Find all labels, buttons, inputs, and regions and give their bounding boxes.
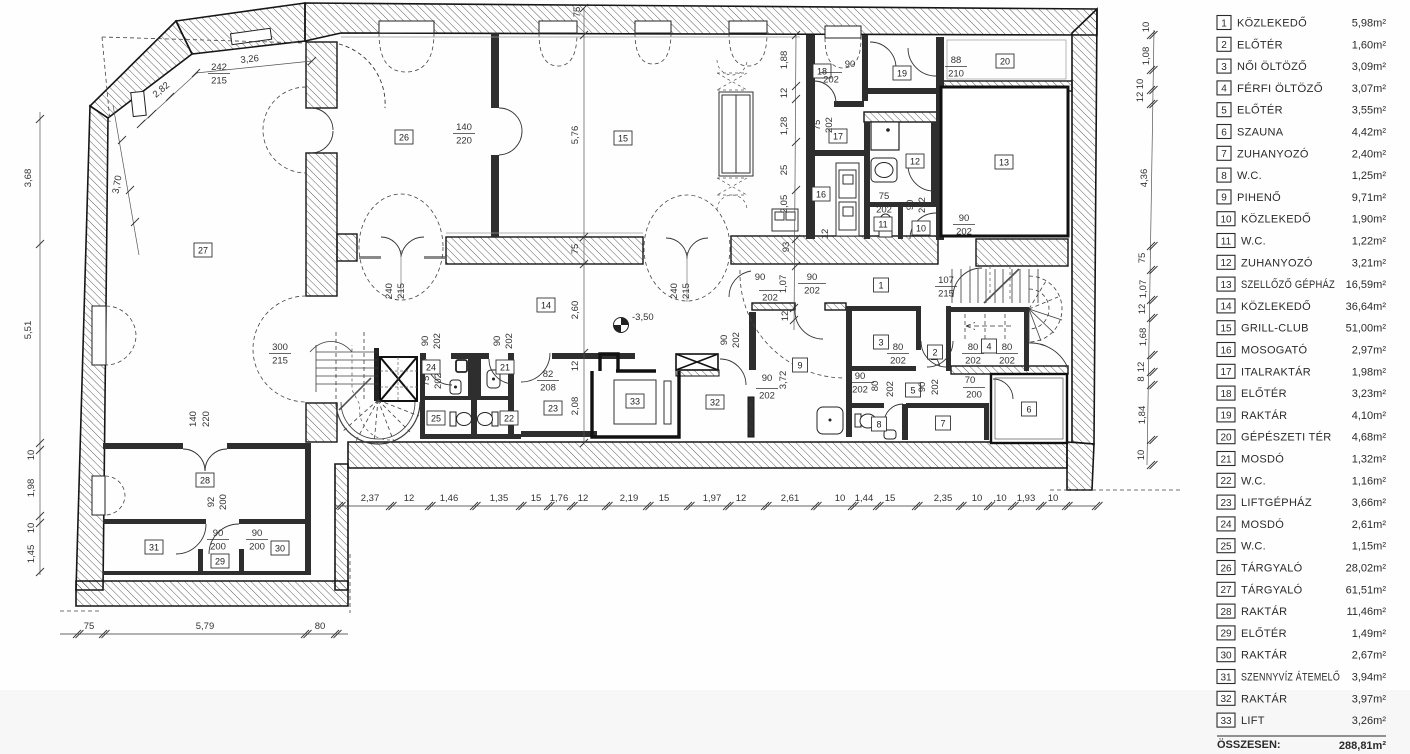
svg-text:33: 33 [1220, 716, 1232, 727]
svg-text:82: 82 [543, 369, 554, 380]
svg-text:18: 18 [1220, 389, 1232, 400]
svg-text:1,46: 1,46 [440, 493, 459, 504]
svg-text:90: 90 [959, 213, 970, 224]
svg-text:1,28: 1,28 [779, 117, 790, 136]
svg-text:1,98m²: 1,98m² [1352, 366, 1387, 378]
svg-text:RAKTÁR: RAKTÁR [1241, 649, 1287, 662]
svg-text:1,98: 1,98 [26, 479, 37, 498]
svg-text:19: 19 [897, 69, 907, 79]
svg-text:10: 10 [26, 450, 37, 461]
svg-text:90: 90 [807, 272, 818, 283]
svg-text:RAKTÁR: RAKTÁR [1241, 692, 1287, 705]
svg-text:7: 7 [1221, 149, 1227, 160]
svg-text:215: 215 [272, 356, 288, 367]
svg-text:13: 13 [1220, 280, 1232, 291]
svg-text:9: 9 [1221, 193, 1227, 204]
svg-text:3,07m²: 3,07m² [1352, 83, 1387, 95]
svg-text:15: 15 [1220, 324, 1232, 335]
svg-text:202: 202 [956, 227, 972, 238]
svg-text:90: 90 [762, 373, 773, 384]
svg-text:12: 12 [820, 229, 831, 240]
svg-text:,10: ,10 [993, 493, 1006, 504]
svg-text:ELŐTÉR: ELŐTÉR [1241, 626, 1287, 640]
svg-text:FÉRFI ÖLTÖZŐ: FÉRFI ÖLTÖZŐ [1237, 81, 1323, 95]
svg-text:SZELLŐZŐ GÉPHÁZ: SZELLŐZŐ GÉPHÁZ [1241, 277, 1335, 291]
svg-text:215: 215 [211, 76, 227, 87]
svg-text:3,21m²: 3,21m² [1352, 257, 1387, 269]
svg-text:29: 29 [215, 557, 225, 567]
svg-text:5: 5 [910, 386, 915, 396]
svg-text:28: 28 [1220, 607, 1232, 618]
svg-text:ZUHANYOZÓ: ZUHANYOZÓ [1237, 147, 1309, 160]
svg-text:240: 240 [669, 283, 680, 299]
svg-text:200: 200 [249, 542, 265, 553]
svg-text:1,16m²: 1,16m² [1352, 475, 1387, 487]
svg-text:3,26: 3,26 [240, 53, 260, 66]
svg-text:10: 10 [972, 493, 983, 504]
svg-text:2,61m²: 2,61m² [1352, 519, 1387, 531]
svg-text:10: 10 [1136, 450, 1147, 461]
svg-text:12: 12 [570, 361, 581, 372]
svg-text:2,60: 2,60 [570, 301, 581, 320]
svg-text:26: 26 [1220, 563, 1232, 574]
svg-text:5,79: 5,79 [196, 621, 215, 632]
svg-text:1,22m²: 1,22m² [1352, 236, 1387, 248]
svg-text:28,02m²: 28,02m² [1346, 563, 1387, 575]
svg-text:8: 8 [1221, 171, 1227, 182]
svg-text:288,81m²: 288,81m² [1339, 740, 1386, 752]
svg-text:SZAUNA: SZAUNA [1237, 127, 1284, 139]
svg-text:202: 202 [804, 286, 820, 297]
svg-text:3,55m²: 3,55m² [1352, 105, 1387, 117]
svg-text:11: 11 [878, 220, 887, 230]
svg-text:1,25m²: 1,25m² [1352, 170, 1387, 182]
svg-text:75: 75 [570, 244, 581, 255]
svg-text:90: 90 [855, 371, 866, 382]
svg-text:202: 202 [504, 333, 515, 349]
svg-text:1,15m²: 1,15m² [1352, 541, 1387, 553]
svg-text:202: 202 [823, 75, 839, 86]
svg-text:80: 80 [315, 621, 326, 632]
svg-text:1,90m²: 1,90m² [1352, 214, 1387, 226]
svg-text:1,60m²: 1,60m² [1352, 39, 1387, 51]
svg-text:200: 200 [218, 494, 229, 510]
svg-text:GÉPÉSZETI TÉR: GÉPÉSZETI TÉR [1241, 431, 1332, 444]
svg-text:90: 90 [845, 59, 856, 70]
svg-text:200: 200 [966, 390, 982, 401]
svg-text:3: 3 [878, 338, 883, 348]
svg-text:4: 4 [986, 342, 991, 352]
svg-text:21: 21 [500, 363, 510, 373]
svg-text:14: 14 [541, 301, 551, 311]
svg-text:1,08: 1,08 [1141, 47, 1152, 66]
svg-text:12: 12 [1220, 258, 1232, 269]
svg-text:10: 10 [1135, 79, 1146, 90]
svg-text:2,40m²: 2,40m² [1352, 148, 1387, 160]
svg-text:LIFTGÉPHÁZ: LIFTGÉPHÁZ [1241, 496, 1312, 509]
svg-text:30: 30 [1220, 651, 1232, 662]
svg-text:MOSDÓ: MOSDÓ [1241, 518, 1284, 531]
svg-text:ELŐTÉR: ELŐTÉR [1241, 386, 1287, 400]
svg-text:75: 75 [84, 621, 95, 632]
svg-text:23: 23 [1220, 498, 1232, 509]
svg-text:-3,50: -3,50 [632, 312, 654, 323]
svg-text:12: 12 [1136, 362, 1147, 373]
svg-text:GRILL-CLUB: GRILL-CLUB [1241, 323, 1309, 335]
svg-text:3,26m²: 3,26m² [1352, 715, 1387, 727]
svg-text:PIHENŐ: PIHENŐ [1237, 190, 1281, 204]
svg-text:220: 220 [456, 136, 472, 147]
svg-text:202: 202 [917, 197, 928, 213]
svg-text:31: 31 [1220, 672, 1232, 683]
svg-text:3,72: 3,72 [778, 371, 789, 390]
svg-text:8: 8 [876, 420, 881, 430]
svg-text:202: 202 [876, 205, 892, 216]
svg-text:202: 202 [759, 391, 775, 402]
svg-text:20: 20 [1000, 57, 1010, 67]
svg-text:215: 215 [396, 283, 407, 299]
svg-text:26: 26 [399, 133, 409, 143]
svg-text:6: 6 [1026, 405, 1031, 415]
svg-text:15: 15 [885, 493, 896, 504]
svg-text:13: 13 [999, 158, 1009, 168]
svg-text:15: 15 [618, 134, 628, 144]
svg-text:90: 90 [719, 335, 730, 346]
svg-text:3,66m²: 3,66m² [1352, 497, 1387, 509]
svg-text:23: 23 [548, 404, 558, 414]
svg-text:1,45: 1,45 [26, 545, 37, 564]
svg-text:70: 70 [965, 375, 976, 386]
svg-text:202: 202 [731, 332, 742, 348]
svg-text:LIFT: LIFT [1241, 715, 1265, 727]
svg-text:11: 11 [1221, 236, 1232, 247]
svg-text:1,07: 1,07 [1138, 280, 1149, 299]
svg-text:75: 75 [421, 376, 432, 387]
svg-text:3,09m²: 3,09m² [1352, 61, 1387, 73]
svg-text:1,97: 1,97 [703, 493, 722, 504]
svg-text:12: 12 [1137, 304, 1148, 315]
svg-text:1,88: 1,88 [779, 51, 790, 70]
svg-text:1,35: 1,35 [490, 493, 509, 504]
svg-text:2: 2 [932, 348, 937, 358]
svg-text:3,23m²: 3,23m² [1352, 388, 1387, 400]
svg-text:12: 12 [404, 493, 415, 504]
svg-text:4,10m²: 4,10m² [1352, 410, 1387, 422]
svg-text:5,98m²: 5,98m² [1352, 18, 1387, 30]
svg-text:2,19: 2,19 [620, 493, 639, 504]
svg-text:80: 80 [1002, 342, 1013, 353]
svg-text:51,00m²: 51,00m² [1346, 323, 1387, 335]
svg-text:14: 14 [1220, 302, 1232, 313]
svg-text:75: 75 [879, 191, 890, 202]
svg-text:3: 3 [1221, 62, 1227, 73]
svg-text:9,71m²: 9,71m² [1352, 192, 1387, 204]
svg-text:RAKTÁR: RAKTÁR [1241, 409, 1287, 422]
svg-text:208: 208 [540, 383, 556, 394]
svg-text:5,51: 5,51 [23, 321, 34, 340]
svg-text:24: 24 [426, 363, 436, 373]
svg-text:KÖZLEKEDŐ: KÖZLEKEDŐ [1237, 16, 1307, 30]
svg-text:16: 16 [1220, 345, 1232, 356]
svg-text:240: 240 [384, 283, 395, 299]
svg-text:107: 107 [938, 275, 954, 286]
svg-text:3,68: 3,68 [23, 169, 34, 188]
svg-text:90: 90 [420, 336, 431, 347]
svg-text:22: 22 [1220, 476, 1232, 487]
svg-text:10: 10 [1141, 22, 1152, 33]
svg-text:80: 80 [968, 342, 979, 353]
svg-text:75: 75 [1137, 253, 1148, 264]
svg-text:10: 10 [1220, 215, 1232, 226]
svg-text:MOSDÓ: MOSDÓ [1241, 453, 1284, 466]
svg-text:ELŐTÉR: ELŐTÉR [1237, 103, 1283, 117]
svg-text:ELŐTÉR: ELŐTÉR [1237, 37, 1283, 51]
svg-text:SZENNYVÍZ ÁTEMELŐ: SZENNYVÍZ ÁTEMELŐ [1241, 670, 1340, 684]
svg-text:3,94m²: 3,94m² [1352, 672, 1387, 684]
svg-text:12: 12 [910, 157, 920, 167]
svg-text:NŐI ÖLTÖZŐ: NŐI ÖLTÖZŐ [1237, 59, 1307, 73]
svg-text:1: 1 [1221, 18, 1227, 29]
svg-text:10: 10 [916, 224, 926, 234]
svg-text:215: 215 [681, 283, 692, 299]
svg-text:4: 4 [1221, 84, 1227, 95]
svg-text:215: 215 [938, 289, 954, 300]
svg-text:33: 33 [630, 397, 640, 407]
svg-text:5,76: 5,76 [570, 126, 581, 145]
svg-text:1,07: 1,07 [778, 275, 789, 294]
svg-text:28: 28 [200, 476, 210, 486]
svg-text:1,68: 1,68 [1138, 328, 1149, 347]
svg-text:32: 32 [1220, 694, 1232, 705]
svg-text:12: 12 [780, 311, 791, 322]
svg-text:31: 31 [149, 543, 159, 553]
svg-text:22: 22 [504, 414, 514, 424]
svg-text:202: 202 [965, 356, 981, 367]
svg-text:140: 140 [456, 122, 472, 133]
svg-text:202: 202 [890, 356, 906, 367]
svg-text:11,46m²: 11,46m² [1346, 606, 1386, 618]
svg-text:202: 202 [824, 117, 835, 133]
svg-text:80: 80 [893, 342, 904, 353]
svg-text:25: 25 [431, 414, 441, 424]
svg-text:W.C.: W.C. [1237, 170, 1262, 182]
svg-text:RAKTÁR: RAKTÁR [1241, 605, 1287, 618]
svg-text:1,32m²: 1,32m² [1352, 454, 1387, 466]
svg-text:202: 202 [999, 356, 1015, 367]
svg-text:TÁRGYALÓ: TÁRGYALÓ [1241, 562, 1303, 575]
svg-text:8: 8 [1136, 376, 1147, 381]
svg-text:2,67m²: 2,67m² [1352, 650, 1387, 662]
svg-text:W.C.: W.C. [1241, 236, 1266, 248]
svg-text:27: 27 [198, 246, 208, 256]
svg-text:75: 75 [812, 120, 823, 131]
svg-text:88: 88 [951, 55, 962, 66]
svg-text:17: 17 [1220, 367, 1232, 378]
svg-text:27: 27 [1220, 585, 1232, 596]
svg-text:202: 202 [433, 373, 444, 389]
svg-text:90: 90 [755, 272, 766, 283]
svg-text:1: 1 [878, 281, 883, 291]
svg-text:90: 90 [213, 528, 224, 539]
svg-text:4,68m²: 4,68m² [1352, 432, 1387, 444]
svg-text:90: 90 [917, 382, 928, 393]
svg-text:15: 15 [531, 493, 542, 504]
svg-text:93: 93 [781, 242, 792, 253]
svg-text:1,49m²: 1,49m² [1352, 628, 1387, 640]
svg-text:3,97m²: 3,97m² [1352, 693, 1387, 705]
svg-text:TÁRGYALÓ: TÁRGYALÓ [1241, 583, 1303, 596]
svg-text:4,36: 4,36 [1139, 169, 1150, 188]
svg-text:61,51m²: 61,51m² [1346, 584, 1387, 596]
svg-text:21: 21 [1220, 454, 1232, 465]
svg-text:24: 24 [1220, 520, 1232, 531]
svg-text:202: 202 [885, 381, 896, 397]
svg-text:15: 15 [659, 493, 670, 504]
svg-text:90: 90 [252, 528, 263, 539]
svg-text:90: 90 [492, 336, 503, 347]
svg-text:30: 30 [275, 544, 285, 554]
svg-text:2,35: 2,35 [934, 493, 953, 504]
svg-text:202: 202 [930, 379, 941, 395]
svg-text:2: 2 [1221, 40, 1227, 51]
svg-text:2,97m²: 2,97m² [1352, 345, 1387, 357]
svg-text:7: 7 [940, 419, 945, 429]
svg-text:2,08: 2,08 [570, 397, 581, 416]
svg-text:W.C.: W.C. [1241, 541, 1266, 553]
svg-text:202: 202 [852, 385, 868, 396]
svg-text:12: 12 [779, 88, 790, 99]
svg-text:140: 140 [188, 411, 199, 427]
svg-text:10: 10 [26, 523, 37, 534]
svg-text:ZUHANYOZÓ: ZUHANYOZÓ [1241, 256, 1313, 269]
svg-text:KÖZLEKEDŐ: KÖZLEKEDŐ [1241, 299, 1311, 313]
svg-text:W.C.: W.C. [1241, 475, 1266, 487]
svg-text:12: 12 [1135, 92, 1146, 103]
svg-text:90: 90 [905, 200, 916, 211]
svg-text:25: 25 [779, 165, 790, 176]
svg-text:2,05: 2,05 [779, 195, 790, 214]
svg-text:202: 202 [432, 333, 443, 349]
svg-text:2,37: 2,37 [361, 493, 380, 504]
svg-text:202: 202 [762, 293, 778, 304]
svg-text:12: 12 [736, 493, 747, 504]
svg-text:16: 16 [816, 190, 826, 200]
svg-text:1,84: 1,84 [1137, 406, 1148, 425]
svg-text:5: 5 [1221, 106, 1227, 117]
svg-text:16,59m²: 16,59m² [1346, 279, 1387, 291]
svg-text:MOSOGATÓ: MOSOGATÓ [1241, 344, 1308, 357]
svg-text:KÖZLEKEDŐ: KÖZLEKEDŐ [1241, 212, 1311, 226]
svg-text:25: 25 [1220, 542, 1232, 553]
svg-text:4,42m²: 4,42m² [1352, 127, 1387, 139]
svg-text:300: 300 [272, 342, 288, 353]
svg-text:2,61: 2,61 [781, 493, 800, 504]
svg-text:ITALRAKTÁR: ITALRAKTÁR [1241, 365, 1311, 378]
svg-text:29: 29 [1220, 629, 1232, 640]
svg-text:75: 75 [572, 7, 583, 18]
svg-text:ÖSSZESEN:: ÖSSZESEN: [1217, 738, 1281, 751]
svg-text:92: 92 [206, 497, 217, 508]
svg-text:20: 20 [1220, 433, 1232, 444]
svg-text:10: 10 [835, 493, 846, 504]
svg-text:220: 220 [201, 411, 212, 427]
svg-text:1,93: 1,93 [1017, 493, 1036, 504]
svg-text:32: 32 [710, 398, 720, 408]
svg-text:9: 9 [797, 361, 802, 371]
svg-text:19: 19 [1220, 411, 1232, 422]
svg-text:210: 210 [948, 69, 964, 80]
svg-text:200: 200 [210, 542, 226, 553]
svg-text:1,76: 1,76 [550, 493, 569, 504]
svg-text:10: 10 [1048, 493, 1059, 504]
svg-text:36,64m²: 36,64m² [1346, 301, 1387, 313]
svg-text:12: 12 [578, 493, 589, 504]
svg-text:6: 6 [1221, 127, 1227, 138]
